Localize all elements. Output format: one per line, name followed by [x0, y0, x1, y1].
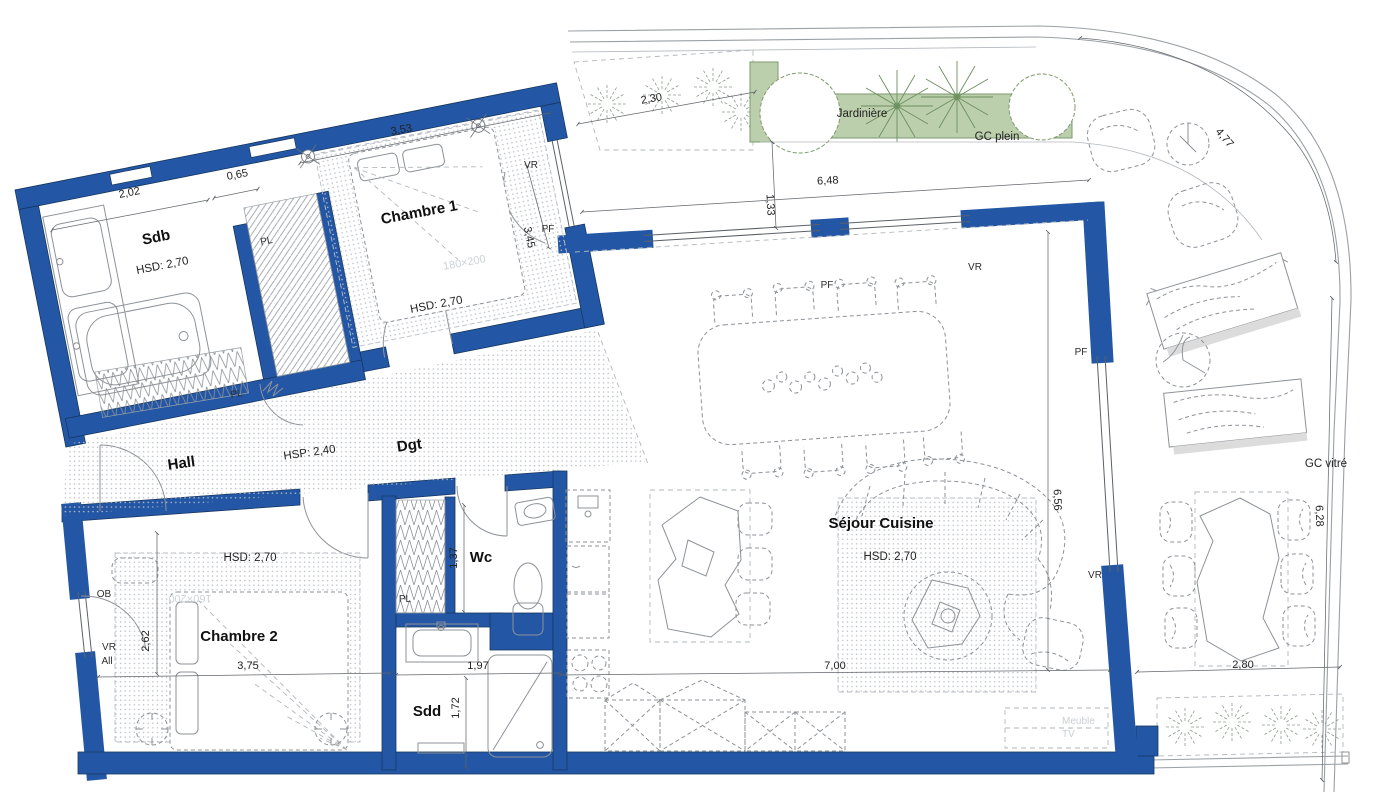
room-label-sdb: Sdb: [141, 227, 172, 249]
opening-all-chambre2: All: [101, 656, 112, 667]
ceiling-label-chambre2: HSD: 2,70: [223, 552, 276, 564]
dim-sdb-door: 0,65: [226, 167, 249, 183]
plant-flower: [1211, 701, 1253, 743]
plant-flower: [1260, 704, 1302, 746]
bed-chambre2: [170, 592, 348, 750]
label-jardiniere: Jardinière: [837, 108, 888, 120]
dim-terrace-curve: 4,77: [1213, 126, 1236, 150]
opening-vr-sejour-right: VR: [1088, 570, 1102, 581]
opening-pf-chambre1: PF: [542, 224, 555, 235]
room-label-wc: Wc: [470, 549, 493, 566]
chambre2-door: [303, 493, 368, 558]
dim-terrace-right: 6,28: [1313, 505, 1326, 527]
kitchen: [566, 490, 845, 751]
dim-sdd-width: 1,97: [467, 660, 488, 672]
ceiling-label-sejour: HSD: 2,70: [863, 551, 916, 563]
toilet: [514, 563, 542, 609]
opening-ob-chambre2: OB: [97, 589, 112, 600]
opening-vr-sejour-top: VR: [968, 262, 982, 273]
opening-vr-chambre2: VR: [102, 642, 116, 653]
dim-terrace-top: 6,48: [817, 174, 839, 187]
dining-table: [696, 309, 952, 446]
terrace-dining-set: [1160, 492, 1315, 666]
label-meuble-tv-2: TV: [1062, 729, 1075, 740]
floor-plan-drawing: Sdb HSD: 2,70 Chambre 1 HSD: 2,70 180×20…: [0, 0, 1390, 800]
terrace-chair: [1083, 105, 1159, 176]
dim-terrace-walkway: 2,30: [640, 91, 663, 107]
dim-terrace-top-depth: 1,33: [763, 194, 776, 216]
room-label-dgt: Dgt: [396, 435, 423, 455]
tv-cabinet: [1005, 708, 1108, 748]
label-gc-vitre: GC vitré: [1305, 458, 1347, 470]
terrace-chair: [1163, 177, 1244, 253]
room-label-sejour: Séjour Cuisine: [828, 515, 933, 532]
label-gc-plein: GC plein: [975, 131, 1020, 143]
opening-vr-chambre1: VR: [524, 160, 538, 171]
dim-chambre2-depth: 2,62: [140, 630, 152, 651]
bar-chair: [738, 503, 772, 535]
dim-sejour-depth: 6,56: [1051, 489, 1064, 511]
opening-pf-sejour-top: PF: [821, 280, 834, 291]
oven-stack: [567, 594, 609, 638]
opening-pf-sejour-right: PF: [1075, 347, 1088, 358]
sun-lounger: [1164, 379, 1308, 455]
wc-basin: [514, 497, 555, 526]
dining-set: [694, 271, 966, 485]
ceiling-label-sdb: HSD: 2,70: [135, 255, 189, 277]
dim-chambre2-width: 3,75: [237, 660, 258, 672]
room-label-sdd: Sdd: [413, 703, 441, 720]
kitchen-island: [658, 497, 741, 637]
dim-terrace-bottom: 2,80: [1232, 659, 1253, 671]
fridge: [567, 546, 609, 592]
tree: [760, 73, 840, 153]
floor-plan-page: Sdb HSD: 2,70 Chambre 1 HSD: 2,70 180×20…: [0, 0, 1390, 800]
dim-sdd-depth: 1,72: [450, 697, 462, 718]
dim-sejour-width: 7,00: [824, 660, 845, 672]
table-centerpiece: [761, 362, 882, 395]
bar-chair: [736, 593, 770, 625]
wc-door: [457, 486, 507, 536]
plant-flower: [692, 66, 734, 108]
bar-chair: [738, 548, 772, 580]
dim-wc-width: 1,37: [448, 547, 460, 568]
closet-label-dgt: PL: [399, 594, 412, 605]
plant-flower: [1164, 706, 1206, 748]
room-label-chambre2: Chambre 2: [200, 628, 278, 645]
bed-size-chambre2: 160×200: [168, 592, 211, 604]
label-meuble-tv-1: Meuble: [1062, 716, 1095, 727]
island-outline: [650, 490, 750, 642]
sun-lounger: [1142, 248, 1304, 359]
closet-label-hall: PL: [230, 388, 244, 401]
